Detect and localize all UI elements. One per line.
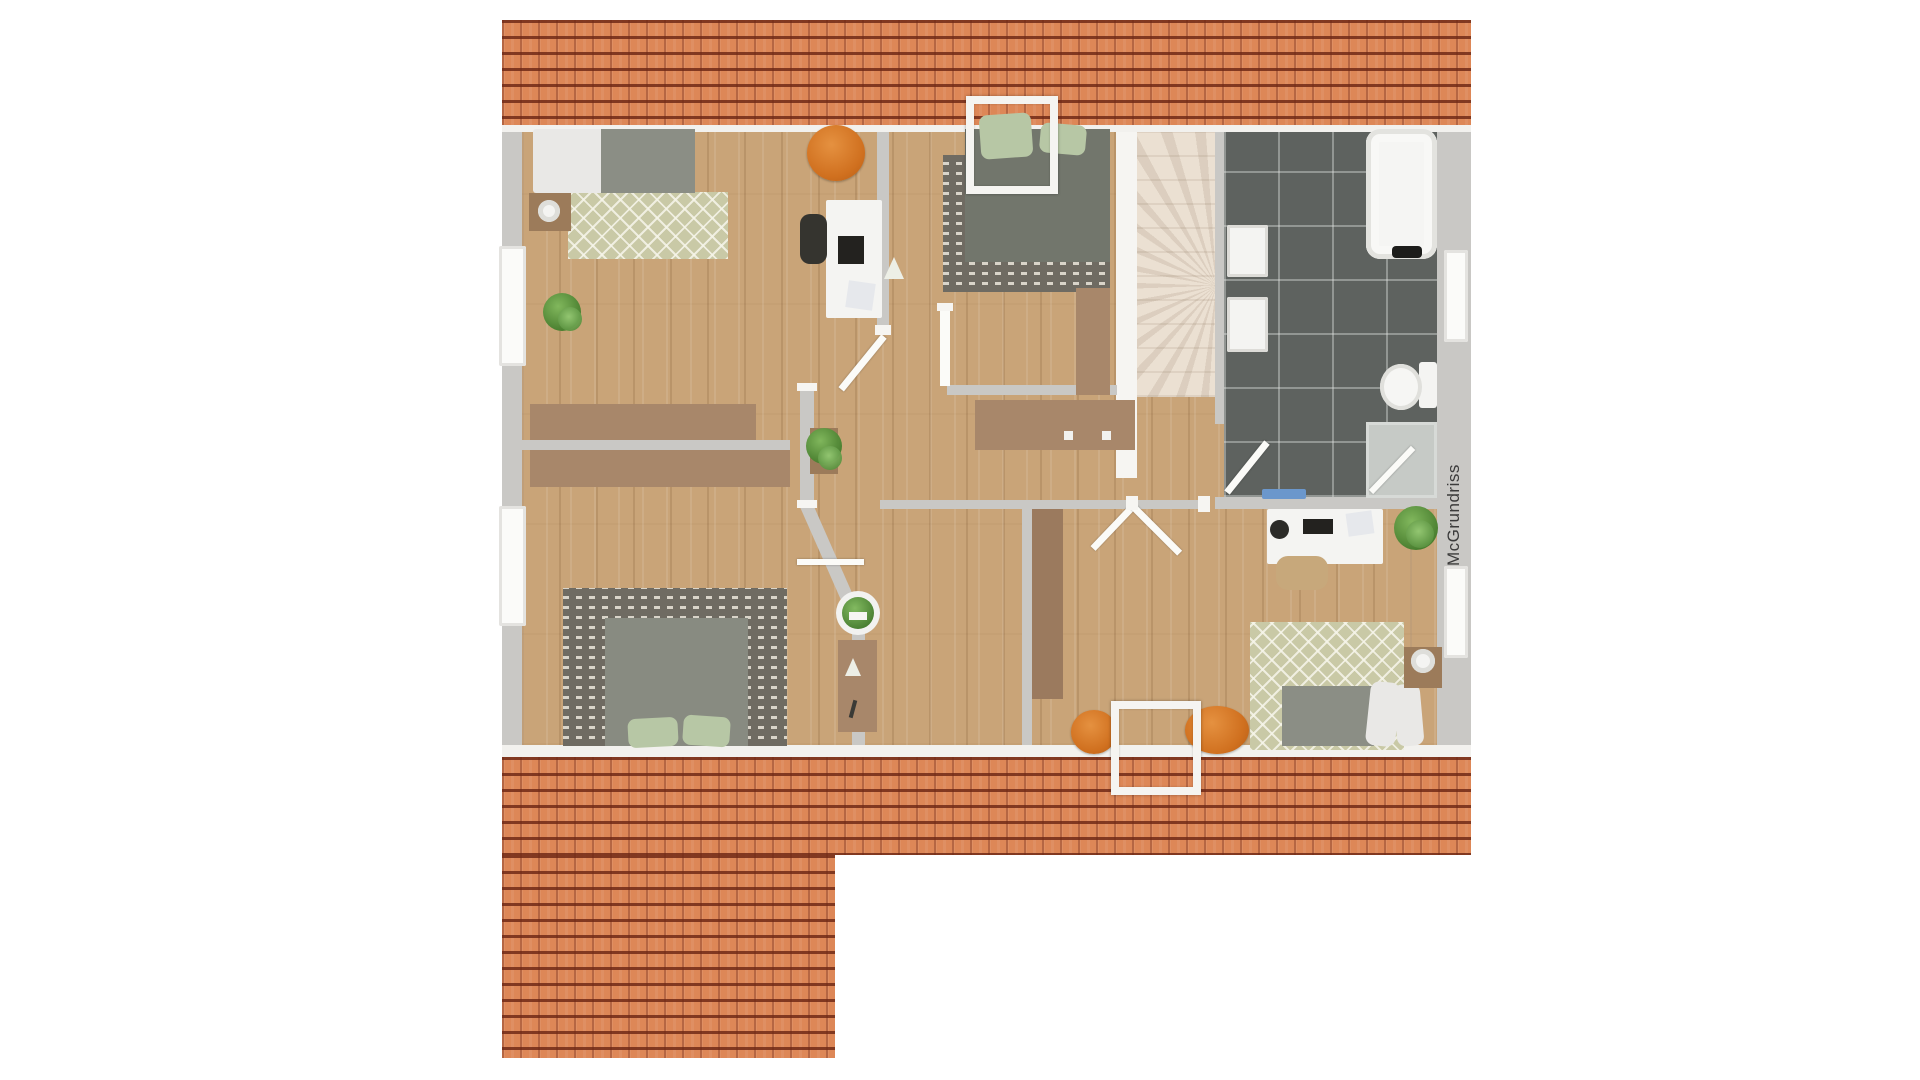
jamb-cap-1 [875,325,891,335]
bed1-mattress [601,129,695,193]
bath-sink-1 [1227,225,1268,277]
bed1-duvet [533,129,603,193]
plant1-b [558,307,582,331]
floor-plan [0,0,1920,1080]
laptop1 [838,236,864,264]
pouf1 [807,125,865,181]
watermark-text: McGrundriss [1441,424,1467,566]
wardrobe-divider-top [530,404,756,440]
rug-bedroom1 [568,192,728,259]
jamb-cap-3 [797,500,817,508]
desk4-magazine [1346,510,1375,536]
wall-bottom-rooms-top [880,500,1210,509]
jamb-cap-7 [849,612,867,620]
window-left-1 [499,246,526,366]
bath-sink-2 [1227,297,1268,352]
roof-bottom [502,757,1471,855]
bathroom-wall-bottom [1215,497,1437,509]
roof-bottom-left-wing [502,855,835,1058]
lamp4 [1411,649,1435,673]
window-right-2 [1444,566,1468,658]
lamp1 [538,200,560,222]
door2-leaf [940,308,950,386]
desk3 [838,640,877,732]
chair1 [800,214,827,264]
bathroom-wall-left [1215,132,1224,424]
wardrobe-divider-bottom [530,450,790,487]
laptop4 [1303,519,1333,534]
chair4 [1276,556,1328,590]
wardrobe-midroom [1032,509,1063,699]
jamb-cap-4 [937,303,953,311]
bath-mat [1262,489,1306,499]
skylight-top [966,96,1058,194]
outer-wall-left [502,132,522,745]
skylight-bottom [1111,701,1201,795]
jamb-cap-2 [797,383,817,391]
wall-midroom-right [1022,509,1032,745]
hall-door-open [797,559,864,565]
toilet-bowl [1380,364,1422,410]
desk4-speaker [1270,520,1289,539]
hall-sideboard [975,400,1135,450]
wall-divider-left [522,440,790,450]
plant4-b [1406,520,1434,548]
window-left-2 [499,506,526,626]
bed4-mattress [1282,686,1374,746]
bed3-pillow-b [682,714,731,747]
desk1-magazine [845,280,875,310]
bathtub-headrest [1392,246,1422,258]
bed4-pillow-b [1392,683,1424,747]
bathtub [1366,129,1437,259]
hall-plant-b [818,446,842,470]
sideboard-knob-1 [1064,431,1073,440]
bed3-pillow-a [627,717,678,749]
jamb-cap-6 [1198,496,1210,512]
wardrobe2 [1076,288,1110,395]
sideboard-knob-2 [1102,431,1111,440]
window-right-1 [1444,250,1468,342]
jamb-cap-5 [1126,496,1138,510]
staircase [1137,132,1215,397]
